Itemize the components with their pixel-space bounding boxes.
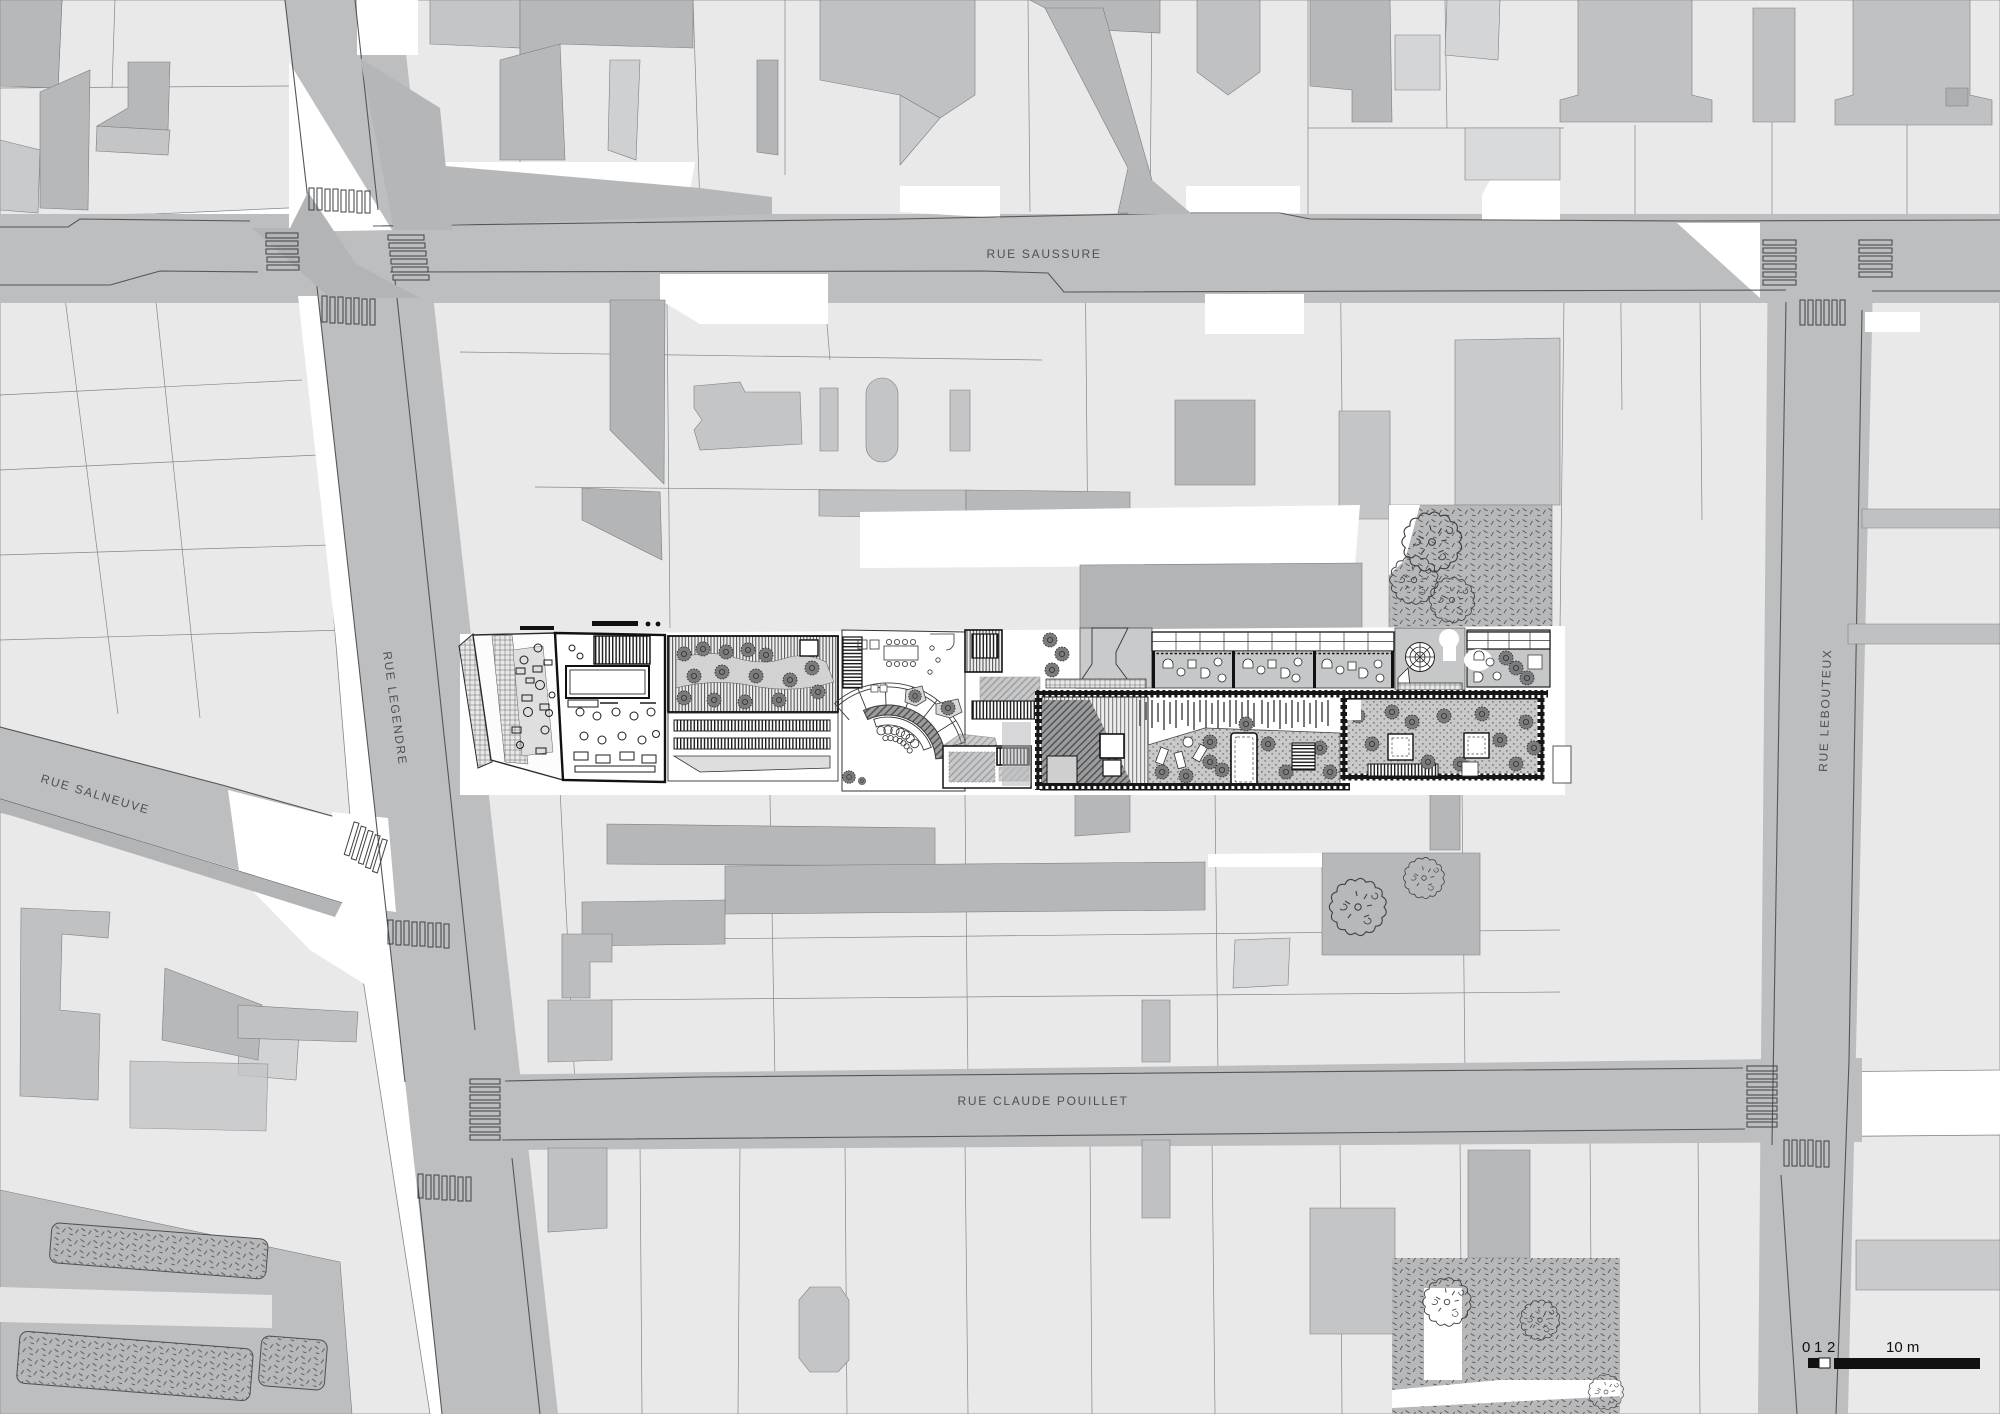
svg-text:1: 1 <box>1814 1339 1822 1356</box>
svg-text:0: 0 <box>1802 1339 1810 1356</box>
svg-text:2: 2 <box>1827 1339 1835 1356</box>
svg-text:RUE CLAUDE POUILLET: RUE CLAUDE POUILLET <box>957 1094 1128 1108</box>
svg-text:10 m: 10 m <box>1886 1339 1919 1356</box>
svg-text:RUE SAUSSURE: RUE SAUSSURE <box>986 247 1101 261</box>
